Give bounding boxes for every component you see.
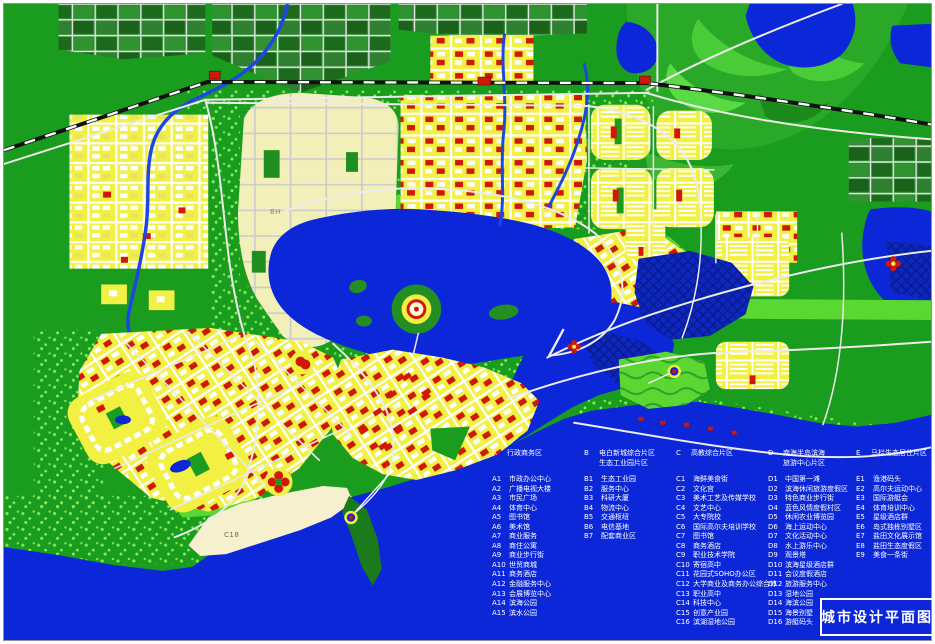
legend-item-code: D13 xyxy=(768,590,785,600)
legend-item-label: 大专院校 xyxy=(693,513,721,523)
legend-item-code: E5 xyxy=(856,513,873,523)
legend-item-list: B1生态工业园B2服务中心B3科研大厦B4物流中心B5交通枢纽B6电信基地B7配… xyxy=(584,475,676,542)
legend-item: A4体育中心 xyxy=(492,504,584,514)
legend-item: E6岛式独栋别墅区 xyxy=(856,523,935,533)
map-label-c18: C18 xyxy=(224,531,239,539)
legend-item-label: 图书馆 xyxy=(509,513,530,523)
legend-item-code: C3 xyxy=(676,494,693,504)
plan-title-box: 城市设计平面图 xyxy=(820,598,934,636)
legend-item-code: A10 xyxy=(492,561,509,571)
flower-park-landmark-icon xyxy=(265,468,293,496)
legend-item-code: D6 xyxy=(768,523,785,533)
legend-item-label: 水上游乐中心 xyxy=(785,542,827,552)
legend-item: C5大专院校 xyxy=(676,513,768,523)
legend-district-code: C xyxy=(676,449,691,471)
legend-item-label: 体育培训中心 xyxy=(873,504,915,514)
legend-item: A3市民广场 xyxy=(492,494,584,504)
legend-item-label: 海滨公园 xyxy=(785,599,813,609)
legend-item-code: A7 xyxy=(492,532,509,542)
legend-item-code: A8 xyxy=(492,542,509,552)
legend-item-code: D14 xyxy=(768,599,785,609)
legend-item: A5图书馆 xyxy=(492,513,584,523)
legend-item-code: C15 xyxy=(676,609,693,619)
legend-item: B7配套商业区 xyxy=(584,532,676,542)
legend-item-label: 渔港码头 xyxy=(873,475,901,485)
legend-item-label: 服务中心 xyxy=(601,485,629,495)
legend-item-list: E1渔港码头E2高尔夫运动中心E3国际游艇会E4体育培训中心E5星级酒店群E6岛… xyxy=(856,475,935,561)
legend-district-title: 行政商务区 xyxy=(507,449,542,471)
legend-item: C9职业技术学院 xyxy=(676,551,768,561)
legend-item: A10世贸商城 xyxy=(492,561,584,571)
legend-item: E4体育培训中心 xyxy=(856,504,935,514)
legend-item-code: D2 xyxy=(768,485,785,495)
legend-item: C14科技中心 xyxy=(676,599,768,609)
legend-item-code: E1 xyxy=(856,475,873,485)
legend-item-label: 物流中心 xyxy=(601,504,629,514)
legend-item-code: C9 xyxy=(676,551,693,561)
legend-item-code: C4 xyxy=(676,504,693,514)
legend-item-code: D16 xyxy=(768,618,785,628)
legend-item-label: 文化活动中心 xyxy=(785,532,827,542)
legend-item-code: C5 xyxy=(676,513,693,523)
legend-item-label: 海上运动中心 xyxy=(785,523,827,533)
legend-item: E7盐田文化展示馆 xyxy=(856,532,935,542)
legend-item-label: 盐田生态度假区 xyxy=(873,542,922,552)
legend-item: A12金融服务中心 xyxy=(492,580,584,590)
legend-item: C11花园式SOHO办公区 xyxy=(676,570,768,580)
legend-item-label: 国际游艇会 xyxy=(873,494,908,504)
legend-item: C7图书馆 xyxy=(676,532,768,542)
legend-item-label: 滨海休闲旅游度假区 xyxy=(785,485,848,495)
legend-item-label: 中国第一滩 xyxy=(785,475,820,485)
legend-item: D3特色商业步行街 xyxy=(768,494,856,504)
legend-item-code: B1 xyxy=(584,475,601,485)
legend-item-label: 岛式独栋别墅区 xyxy=(873,523,922,533)
legend-item-code: B5 xyxy=(584,513,601,523)
legend-item-label: 美食一条街 xyxy=(873,551,908,561)
legend-district-header: E马栏生态居住片区 xyxy=(856,449,935,471)
legend-district-code: D xyxy=(768,449,783,471)
legend-item-label: 大学商业及商务办公综合体 xyxy=(693,580,777,590)
legend-item-code: A2 xyxy=(492,485,509,495)
legend-item-code: C1 xyxy=(676,475,693,485)
legend-item-list: C1海鲜美食街C2文化宫C3美术工艺及传媒学校C4文艺中心C5大专院校C6国际高… xyxy=(676,475,768,628)
legend-item-code: B4 xyxy=(584,504,601,514)
legend-item-code: E3 xyxy=(856,494,873,504)
legend-item-code: C7 xyxy=(676,532,693,542)
legend-item-label: 会议度假酒店 xyxy=(785,570,827,580)
legend-item-label: 配套商业区 xyxy=(601,532,636,542)
legend-item-label: 滨水公园 xyxy=(509,609,537,619)
legend-district-title: 高教综合片区 xyxy=(691,449,733,471)
legend-item-code: C14 xyxy=(676,599,693,609)
legend-item: C1海鲜美食街 xyxy=(676,475,768,485)
legend-item-code: A13 xyxy=(492,590,509,600)
legend-item-label: 海鲜美食街 xyxy=(693,475,728,485)
legend-item: B1生态工业园 xyxy=(584,475,676,485)
legend-item-label: 滨海公园 xyxy=(509,599,537,609)
legend-column-A: A行政商务区A1市政办公中心A2广播电视大楼A3市民广场A4体育中心A5图书馆A… xyxy=(492,449,584,628)
rail-station-icon xyxy=(640,76,651,84)
legend-item-label: 滨湖湿地公园 xyxy=(693,618,735,628)
legend-item-code: D7 xyxy=(768,532,785,542)
legend-item: E8盐田生态度假区 xyxy=(856,542,935,552)
legend-item-code: D11 xyxy=(768,570,785,580)
legend-column-C: C高教综合片区C1海鲜美食街C2文化宫C3美术工艺及传媒学校C4文艺中心C5大专… xyxy=(676,449,768,628)
legend-item: B3科研大厦 xyxy=(584,494,676,504)
legend-item-label: 花园式SOHO办公区 xyxy=(693,570,756,580)
legend-district-code: E xyxy=(856,449,871,471)
legend-item-code: A15 xyxy=(492,609,509,619)
legend-item-label: 美术工艺及传媒学校 xyxy=(693,494,756,504)
legend-item-label: 图书馆 xyxy=(693,532,714,542)
legend-item-label: 高尔夫运动中心 xyxy=(873,485,922,495)
legend-item-code: C13 xyxy=(676,590,693,600)
legend-item-code: D1 xyxy=(768,475,785,485)
legend-item: A1市政办公中心 xyxy=(492,475,584,485)
legend-item-code: C12 xyxy=(676,580,693,590)
legend-item-label: 星级酒店群 xyxy=(873,513,908,523)
legend-column-B: B电白新城综合片区生态工业园片区B1生态工业园B2服务中心B3科研大厦B4物流中… xyxy=(584,449,676,628)
legend-item: A6美术馆 xyxy=(492,523,584,533)
legend-item: D1中国第一滩 xyxy=(768,475,856,485)
legend-item: E1渔港码头 xyxy=(856,475,935,485)
legend-item-label: 职业高中 xyxy=(693,590,721,600)
legend-item-label: 海景别墅 xyxy=(785,609,813,619)
legend-item-code: C8 xyxy=(676,542,693,552)
legend-district-code: A xyxy=(492,449,507,471)
legend-item-label: 广播电视大楼 xyxy=(509,485,551,495)
legend-item: D9观景塔 xyxy=(768,551,856,561)
legend-item-label: 商住公寓 xyxy=(509,542,537,552)
legend-item-code: A1 xyxy=(492,475,509,485)
legend-item-label: 职业技术学院 xyxy=(693,551,735,561)
legend-item-list: A1市政办公中心A2广播电视大楼A3市民广场A4体育中心A5图书馆A6美术馆A7… xyxy=(492,475,584,618)
legend-item-code: A11 xyxy=(492,570,509,580)
legend-item-code: B7 xyxy=(584,532,601,542)
legend-item-code: E2 xyxy=(856,485,873,495)
legend-item-code: D15 xyxy=(768,609,785,619)
legend-item-label: 生态工业园 xyxy=(601,475,636,485)
legend-item: A9商业步行街 xyxy=(492,551,584,561)
legend-item: A14滨海公园 xyxy=(492,599,584,609)
legend-item: C3美术工艺及传媒学校 xyxy=(676,494,768,504)
legend-district-header: A行政商务区 xyxy=(492,449,584,471)
legend-item-code: A5 xyxy=(492,513,509,523)
legend-item-code: B2 xyxy=(584,485,601,495)
legend-item-code: B3 xyxy=(584,494,601,504)
legend-item-label: 国际高尔夫培训学校 xyxy=(693,523,756,533)
legend-item-label: 盐田文化展示馆 xyxy=(873,532,922,542)
legend-item-code: D9 xyxy=(768,551,785,561)
legend-item-code: E8 xyxy=(856,542,873,552)
plan-image-frame: BH C18 A行政商务区A1市政办公中心A2广播电视大楼A3市民广场A4体育中… xyxy=(0,0,935,644)
legend-item-label: 市民广场 xyxy=(509,494,537,504)
legend-item: E9美食一条街 xyxy=(856,551,935,561)
legend-district-title-line: 行政商务区 xyxy=(507,449,542,459)
legend-item-label: 商业步行街 xyxy=(509,551,544,561)
legend-item: C6国际高尔夫培训学校 xyxy=(676,523,768,533)
legend-item: A13会展博览中心 xyxy=(492,590,584,600)
legend-item-code: A12 xyxy=(492,580,509,590)
legend-item: A11商务酒店 xyxy=(492,570,584,580)
legend-district-title: 马栏生态居住片区 xyxy=(871,449,927,471)
stadium-landmark-icon xyxy=(291,351,315,375)
legend-item: C16滨湖湿地公园 xyxy=(676,618,768,628)
legend-item: B4物流中心 xyxy=(584,504,676,514)
northwest-grid-district xyxy=(69,115,208,269)
legend-item: E5星级酒店群 xyxy=(856,513,935,523)
legend-item: D8水上游乐中心 xyxy=(768,542,856,552)
legend-item-code: C16 xyxy=(676,618,693,628)
legend-item-code: D12 xyxy=(768,580,785,590)
legend-item-label: 金融服务中心 xyxy=(509,580,551,590)
legend-item-code: D4 xyxy=(768,504,785,514)
legend-item: B2服务中心 xyxy=(584,485,676,495)
legend-item-code: E7 xyxy=(856,532,873,542)
legend-item-label: 旅游服务中心 xyxy=(785,580,827,590)
legend-item-code: D8 xyxy=(768,542,785,552)
legend-item-label: 会展博览中心 xyxy=(509,590,551,600)
legend-item-label: 商业服务 xyxy=(509,532,537,542)
legend-item: D5休闲农业博览园 xyxy=(768,513,856,523)
legend-item-label: 创意产业园 xyxy=(693,609,728,619)
legend-item-code: C10 xyxy=(676,561,693,571)
legend-item-label: 美术馆 xyxy=(509,523,530,533)
legend-item: C4文艺中心 xyxy=(676,504,768,514)
legend-item: C15创意产业园 xyxy=(676,609,768,619)
legend-item-label: 文艺中心 xyxy=(693,504,721,514)
rail-station-icon xyxy=(478,77,491,85)
south-residential-block xyxy=(716,342,789,389)
legend-item: D4蓝色风情度假村区 xyxy=(768,504,856,514)
legend-item-label: 观景塔 xyxy=(785,551,806,561)
legend-item-label: 湿地公园 xyxy=(785,590,813,600)
legend-item-label: 商务酒店 xyxy=(509,570,537,580)
legend-item: D12旅游服务中心 xyxy=(768,580,856,590)
legend-item-code: B6 xyxy=(584,523,601,533)
legend-district-title-line: 高教综合片区 xyxy=(691,449,733,459)
legend-district-header: B电白新城综合片区生态工业园片区 xyxy=(584,449,676,471)
legend-item-label: 特色商业步行街 xyxy=(785,494,834,504)
legend-item: C13职业高中 xyxy=(676,590,768,600)
legend-item: A15滨水公园 xyxy=(492,609,584,619)
legend-district-title-line: 旅游中心片区 xyxy=(783,459,825,469)
legend-district-header: C高教综合片区 xyxy=(676,449,768,471)
legend-item: C2文化宫 xyxy=(676,485,768,495)
legend-item-code: E9 xyxy=(856,551,873,561)
legend-item: D7文化活动中心 xyxy=(768,532,856,542)
legend-district-title-line: 南海半岛滨海 xyxy=(783,449,825,459)
rail-station-icon xyxy=(209,71,220,79)
legend-item: C8商务酒店 xyxy=(676,542,768,552)
legend-item-code: E6 xyxy=(856,523,873,533)
legend-item-label: 科技中心 xyxy=(693,599,721,609)
legend-item-code: A14 xyxy=(492,599,509,609)
legend-item-code: C2 xyxy=(676,485,693,495)
legend-item-label: 体育中心 xyxy=(509,504,537,514)
legend-item: B6电信基地 xyxy=(584,523,676,533)
north-of-rail-blocks xyxy=(430,36,533,81)
legend-item-label: 休闲农业博览园 xyxy=(785,513,834,523)
legend-district-code: B xyxy=(584,449,599,471)
legend-item-label: 商务酒店 xyxy=(693,542,721,552)
legend-item: D11会议度假酒店 xyxy=(768,570,856,580)
legend-item: C12大学商业及商务办公综合体 xyxy=(676,580,768,590)
legend-item-code: A3 xyxy=(492,494,509,504)
legend-item-label: 游艇码头 xyxy=(785,618,813,628)
legend-item-code: A4 xyxy=(492,504,509,514)
legend-item-label: 市政办公中心 xyxy=(509,475,551,485)
legend-item-code: D5 xyxy=(768,513,785,523)
legend-district-header: D南海半岛滨海旅游中心片区 xyxy=(768,449,856,471)
legend-item: D6海上运动中心 xyxy=(768,523,856,533)
legend-item-code: D10 xyxy=(768,561,785,571)
legend-item: B5交通枢纽 xyxy=(584,513,676,523)
legend-item-code: C6 xyxy=(676,523,693,533)
legend-item-label: 交通枢纽 xyxy=(601,513,629,523)
legend-district-title-line: 马栏生态居住片区 xyxy=(871,449,927,459)
legend-district-title: 南海半岛滨海旅游中心片区 xyxy=(783,449,825,471)
legend-item-code: A6 xyxy=(492,523,509,533)
legend-district-title: 电白新城综合片区生态工业园片区 xyxy=(599,449,655,471)
legend-item-code: A9 xyxy=(492,551,509,561)
legend-item: E2高尔夫运动中心 xyxy=(856,485,935,495)
legend-item-code: D3 xyxy=(768,494,785,504)
legend-item: D2滨海休闲旅游度假区 xyxy=(768,485,856,495)
legend-item-label: 文化宫 xyxy=(693,485,714,495)
legend-item-label: 蓝色风情度假村区 xyxy=(785,504,841,514)
legend-item: A8商住公寓 xyxy=(492,542,584,552)
legend-item-code: E4 xyxy=(856,504,873,514)
legend-district-title-line: 生态工业园片区 xyxy=(599,459,655,469)
legend-item: E3国际游艇会 xyxy=(856,494,935,504)
plan-title: 城市设计平面图 xyxy=(821,607,933,627)
legend-item-label: 电信基地 xyxy=(601,523,629,533)
legend-item: A7商业服务 xyxy=(492,532,584,542)
legend-item-code: C11 xyxy=(676,570,693,580)
legend-district-title-line: 电白新城综合片区 xyxy=(599,449,655,459)
map-label-bh: BH xyxy=(270,208,281,216)
legend-item-label: 科研大厦 xyxy=(601,494,629,504)
legend-item: A2广播电视大楼 xyxy=(492,485,584,495)
